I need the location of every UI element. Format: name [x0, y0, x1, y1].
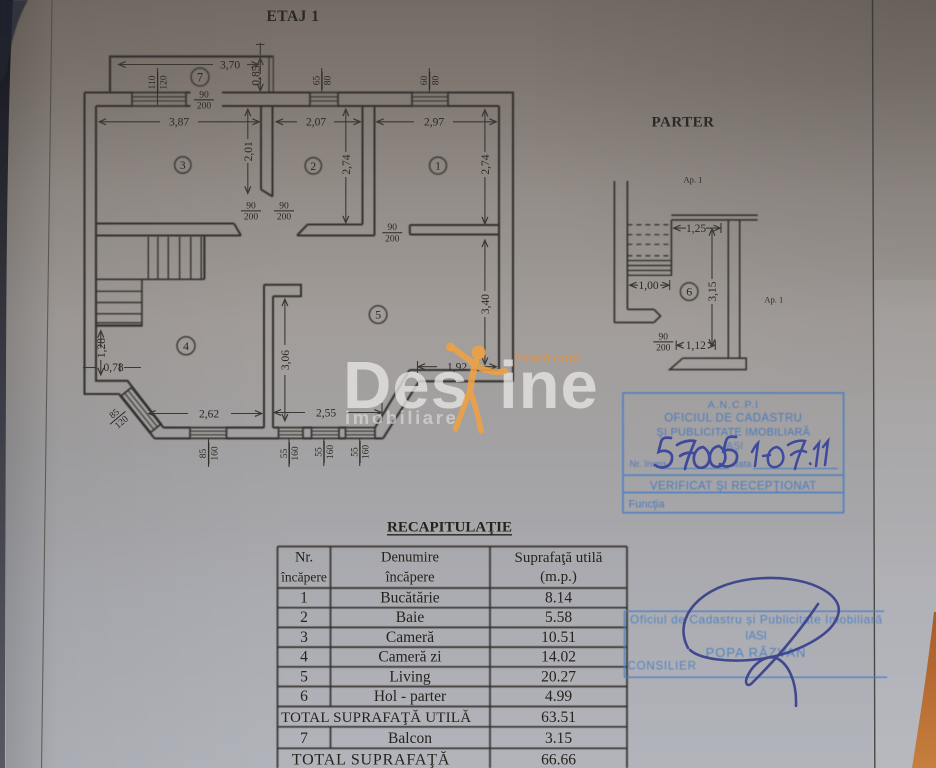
svg-text:2,74: 2,74 [480, 154, 492, 174]
svg-text:200: 200 [244, 213, 259, 223]
svg-text:5: 5 [375, 308, 381, 322]
svg-text:fiindcă exiști: fiindcă exiști [514, 350, 581, 365]
svg-text:90: 90 [199, 90, 209, 100]
svg-text:2,55: 2,55 [316, 407, 336, 419]
svg-text:3,15: 3,15 [707, 281, 719, 301]
svg-text:6: 6 [300, 688, 308, 705]
svg-text:TOTAL SUPRAFAŢĂ UTILĂ: TOTAL SUPRAFAŢĂ UTILĂ [281, 709, 471, 726]
svg-text:VERIFICAT ŞI RECEPŢIONAT: VERIFICAT ŞI RECEPŢIONAT [650, 481, 817, 493]
svg-text:1,12: 1,12 [686, 340, 706, 352]
svg-text:3,06: 3,06 [280, 350, 292, 370]
svg-text:Oficiul de Cadastru și Publici: Oficiul de Cadastru și Publicitate Imobi… [630, 613, 882, 627]
svg-text:Baie: Baie [396, 609, 425, 626]
svg-text:CONSILIER: CONSILIER [628, 661, 697, 673]
svg-text:1,28: 1,28 [96, 338, 108, 358]
svg-text:200: 200 [385, 234, 400, 244]
svg-text:0,78: 0,78 [103, 362, 123, 374]
svg-text:90: 90 [246, 201, 256, 211]
svg-text:120: 120 [159, 75, 169, 90]
svg-text:3.15: 3.15 [545, 730, 572, 747]
svg-text:IASI: IASI [745, 631, 767, 643]
svg-text:5.58: 5.58 [545, 609, 572, 626]
svg-text:160: 160 [362, 445, 372, 460]
svg-text:55: 55 [280, 449, 290, 459]
svg-text:160: 160 [326, 445, 336, 460]
svg-text:(m.p.): (m.p.) [540, 569, 577, 585]
svg-text:55: 55 [315, 447, 325, 457]
svg-text:Ap. 1: Ap. 1 [684, 175, 703, 185]
svg-text:3,87: 3,87 [169, 117, 189, 129]
svg-text:4: 4 [183, 339, 189, 353]
svg-text:160: 160 [291, 446, 301, 461]
svg-text:90: 90 [388, 223, 398, 233]
svg-text:Cameră zi: Cameră zi [378, 649, 442, 666]
svg-text:0,85: 0,85 [251, 65, 263, 85]
svg-text:60: 60 [420, 76, 430, 86]
svg-text:2,97: 2,97 [424, 117, 444, 129]
svg-text:Cameră: Cameră [386, 629, 434, 646]
svg-text:Nr.: Nr. [295, 550, 313, 566]
svg-text:4: 4 [300, 649, 308, 666]
svg-text:3: 3 [300, 629, 308, 646]
svg-text:Funcţia: Funcţia [629, 499, 666, 511]
svg-text:2,62: 2,62 [199, 408, 219, 420]
svg-text:TOTAL SUPRAFAŢĂ: TOTAL SUPRAFAŢĂ [292, 750, 450, 768]
svg-text:Suprafaţă utilă: Suprafaţă utilă [515, 550, 603, 566]
svg-text:90: 90 [659, 332, 669, 342]
svg-text:2,74: 2,74 [341, 154, 353, 174]
svg-text:4.99: 4.99 [545, 688, 572, 705]
svg-text:2: 2 [300, 609, 308, 626]
svg-text:6: 6 [686, 285, 692, 299]
svg-text:66.66: 66.66 [541, 752, 576, 768]
svg-text:PARTER: PARTER [651, 115, 714, 131]
svg-text:7: 7 [197, 71, 203, 85]
svg-text:RECAPITULAŢIE: RECAPITULAŢIE [387, 520, 512, 536]
svg-text:20.27: 20.27 [541, 668, 576, 685]
svg-text:90: 90 [279, 201, 289, 211]
svg-text:65: 65 [313, 76, 323, 86]
svg-text:încăpere: încăpere [280, 570, 327, 585]
svg-text:Hol - parter: Hol - parter [374, 688, 447, 705]
svg-text:1,25: 1,25 [686, 223, 706, 235]
svg-text:200: 200 [197, 102, 212, 112]
svg-text:A.N.C.P.I: A.N.C.P.I [708, 399, 759, 411]
svg-text:80: 80 [431, 76, 441, 86]
svg-text:3,40: 3,40 [480, 294, 492, 314]
svg-text:200: 200 [656, 344, 671, 354]
svg-text:110: 110 [148, 75, 158, 89]
svg-text:1: 1 [300, 590, 308, 607]
svg-text:3,70: 3,70 [220, 59, 240, 71]
svg-text:2: 2 [310, 161, 316, 173]
svg-text:Living: Living [389, 668, 431, 685]
svg-text:85: 85 [199, 449, 209, 459]
svg-text:8.14: 8.14 [545, 590, 572, 607]
svg-text:7: 7 [300, 730, 308, 747]
svg-text:Bucătărie: Bucătărie [380, 590, 440, 607]
svg-text:Denumire: Denumire [381, 550, 439, 566]
svg-text:încăpere: încăpere [384, 570, 434, 586]
svg-text:63.51: 63.51 [541, 709, 576, 726]
svg-text:14.02: 14.02 [541, 649, 576, 666]
svg-text:Ap. 1: Ap. 1 [764, 295, 783, 305]
svg-text:OFICIUL DE CADASTRU: OFICIUL DE CADASTRU [664, 413, 802, 425]
svg-text:imobiliare: imobiliare [345, 407, 458, 428]
svg-text:2,07: 2,07 [306, 117, 326, 129]
svg-text:1: 1 [435, 161, 441, 173]
svg-text:1,00: 1,00 [639, 280, 659, 292]
svg-text:160: 160 [210, 446, 220, 461]
svg-text:Balcon: Balcon [388, 730, 432, 747]
svg-text:3: 3 [180, 160, 186, 172]
svg-text:55: 55 [351, 447, 361, 457]
svg-text:80: 80 [324, 76, 334, 86]
svg-text:2,01: 2,01 [243, 141, 255, 161]
svg-text:ETAJ 1: ETAJ 1 [266, 8, 319, 25]
svg-text:10.51: 10.51 [541, 629, 576, 646]
svg-text:200: 200 [277, 213, 292, 223]
svg-text:5: 5 [300, 668, 308, 685]
